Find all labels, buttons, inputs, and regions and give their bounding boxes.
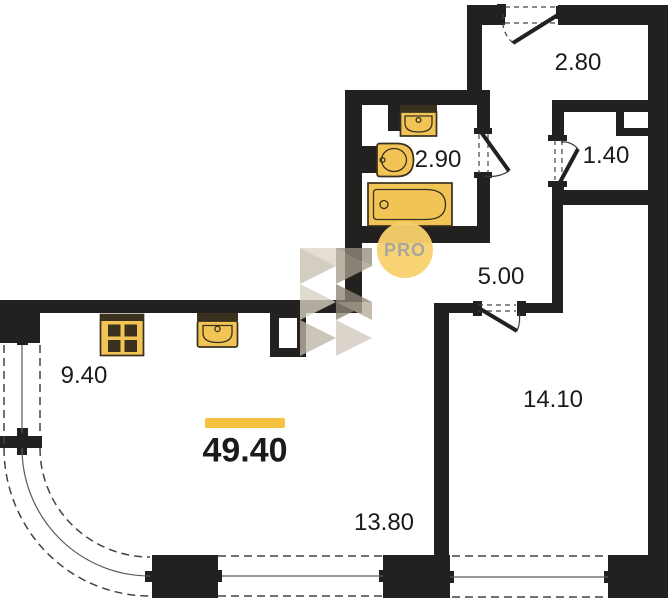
area-label-bedroom: 14.10 [523, 386, 583, 414]
bottom-window-right [450, 556, 608, 597]
total-area-accent-bar [205, 418, 285, 428]
left-window [4, 345, 40, 448]
floor-plan: 2.80 2.90 1.40 5.00 9.40 14.10 13.80 49.… [0, 0, 668, 600]
bathtub-icon [368, 183, 452, 226]
area-label-wardrobe: 1.40 [583, 142, 630, 170]
bedroom-door [477, 305, 520, 331]
stove-icon [101, 315, 144, 356]
area-label-hallway: 5.00 [478, 263, 525, 291]
bay-window-curve [4, 448, 150, 596]
area-label-entry-hall: 2.80 [555, 49, 602, 77]
area-label-kitchen: 9.40 [61, 362, 108, 390]
washbasin-icon [400, 105, 437, 136]
watermark-pro-text: PRO [384, 240, 426, 261]
bottom-window-left [218, 556, 383, 596]
kitchen-sink-icon [197, 313, 238, 347]
watermark-logo [300, 248, 372, 356]
watermark-pro-badge: PRO [377, 222, 433, 278]
floor-plan-drawing [0, 0, 668, 600]
wardrobe-door [555, 140, 578, 184]
bathroom-door [479, 132, 509, 176]
area-label-bathroom: 2.90 [415, 146, 462, 174]
entry-door [503, 7, 561, 43]
total-area-label: 49.40 [202, 432, 287, 471]
area-label-living-room: 13.80 [354, 509, 414, 537]
toilet-icon [362, 144, 414, 177]
